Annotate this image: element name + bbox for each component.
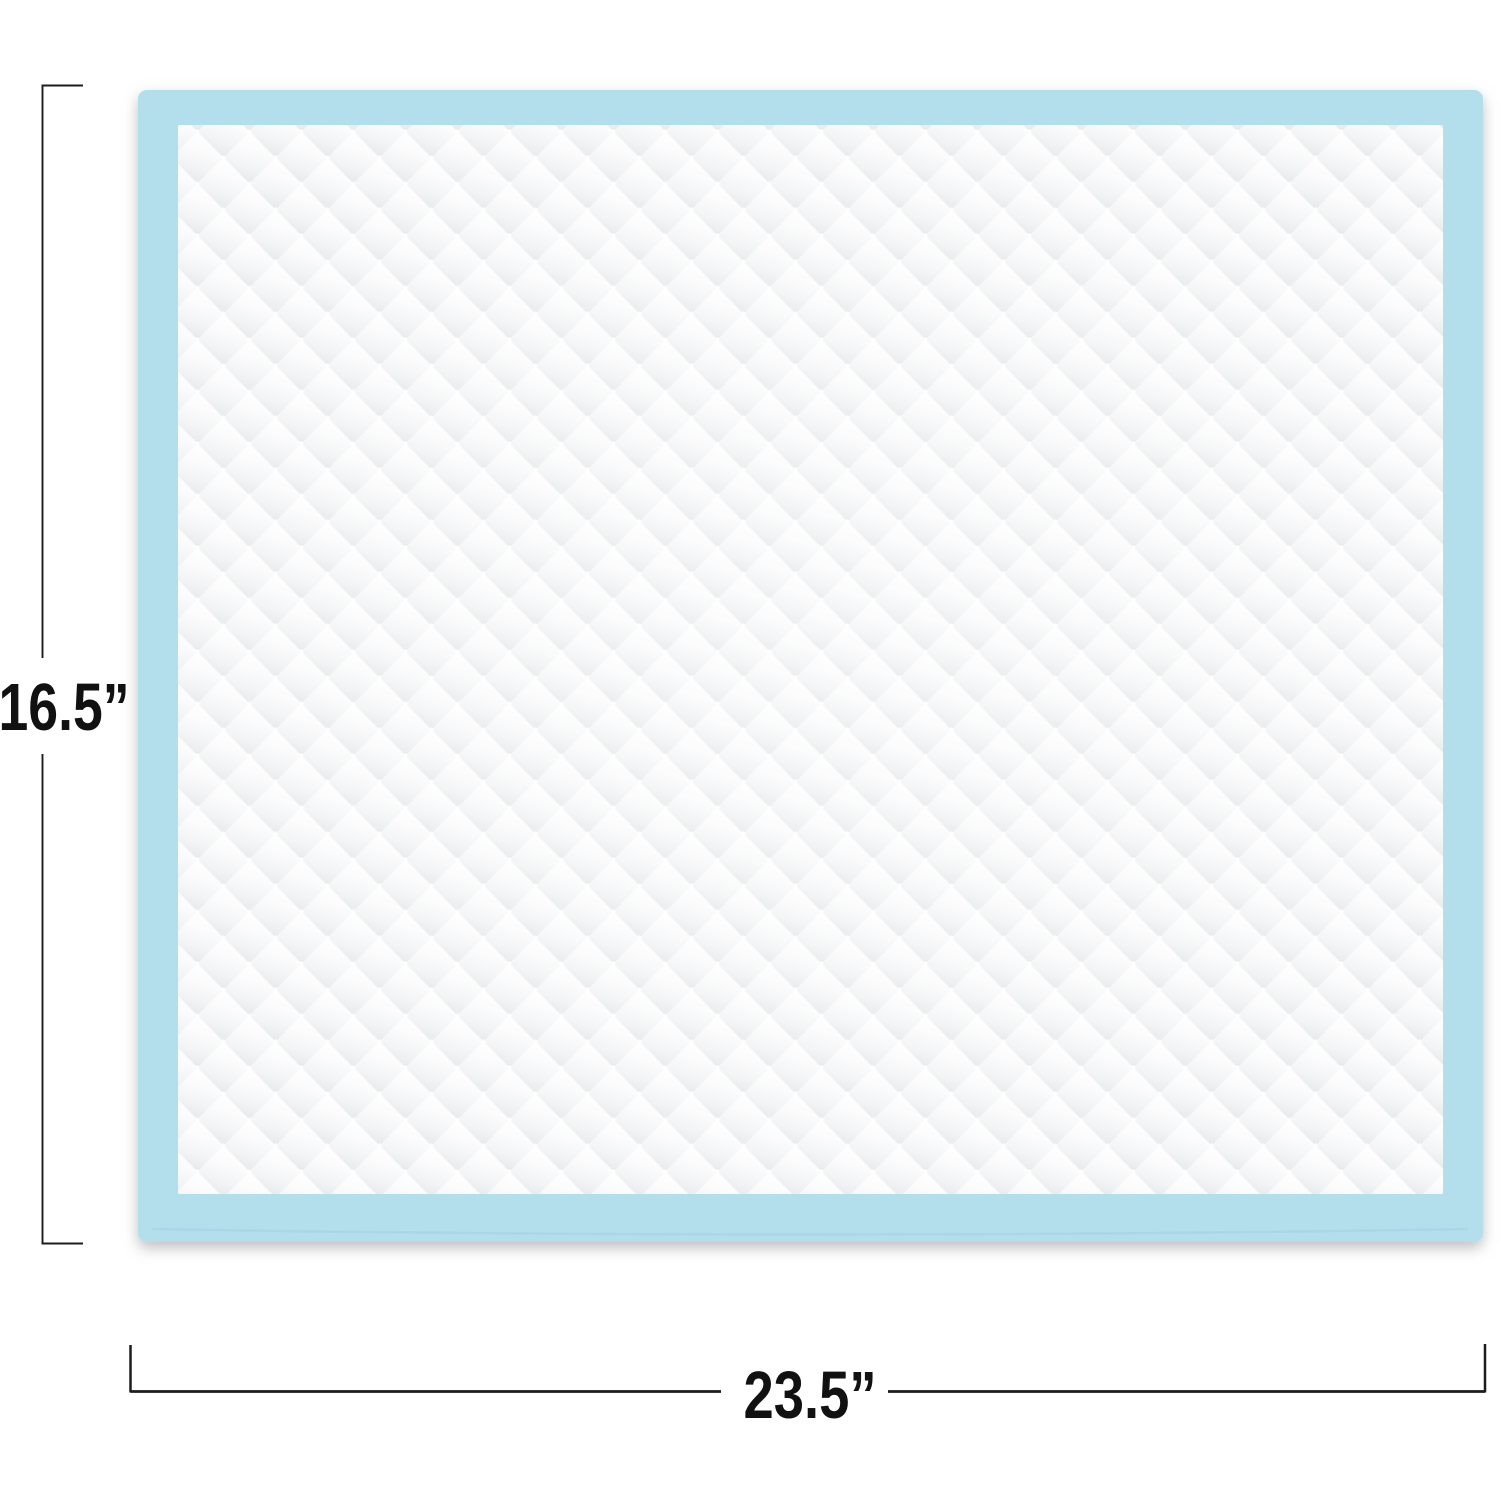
svg-text:16.5”: 16.5” — [0, 670, 130, 745]
svg-text:23.5”: 23.5” — [744, 1358, 877, 1433]
